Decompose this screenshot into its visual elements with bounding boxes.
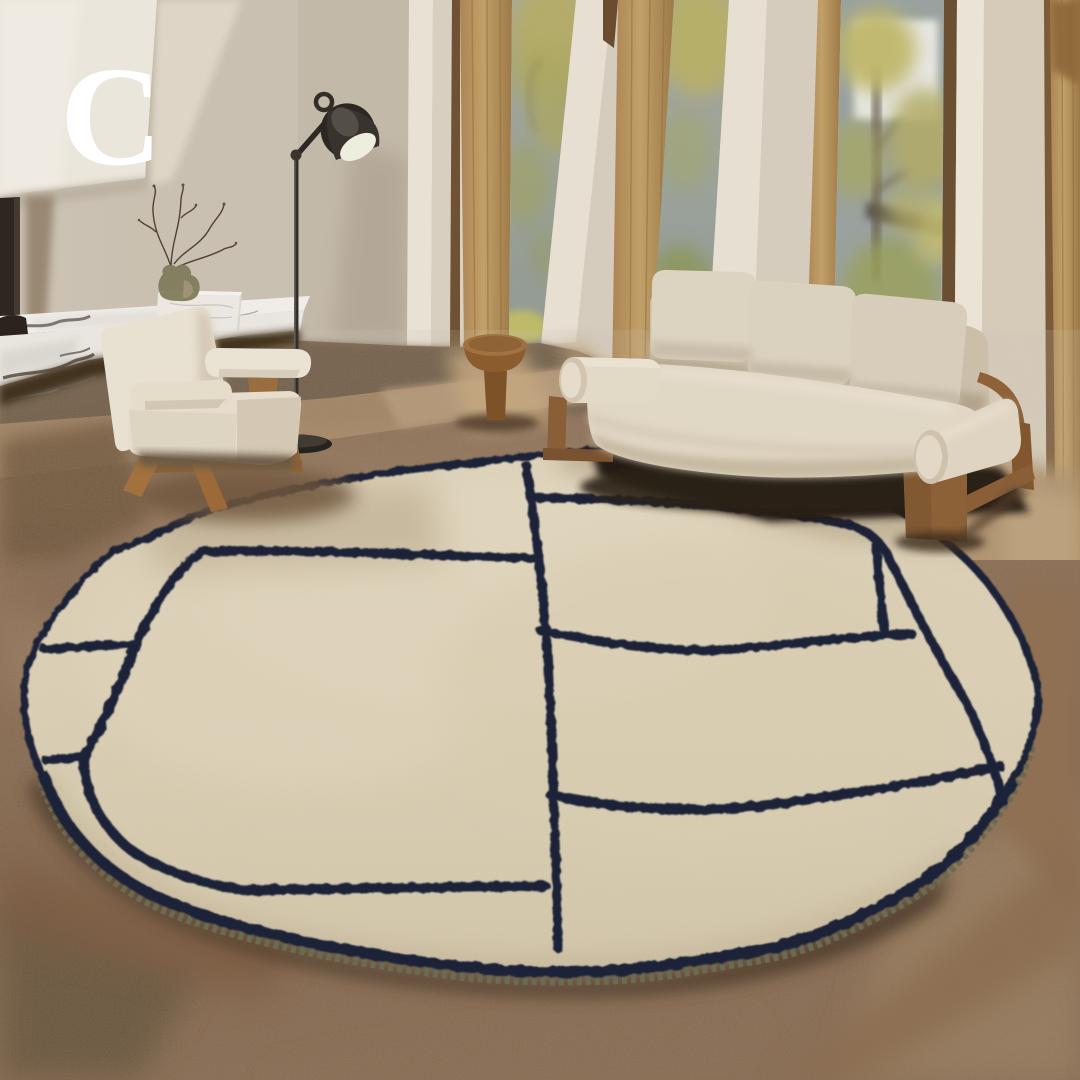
svg-text:C: C bbox=[60, 37, 163, 195]
